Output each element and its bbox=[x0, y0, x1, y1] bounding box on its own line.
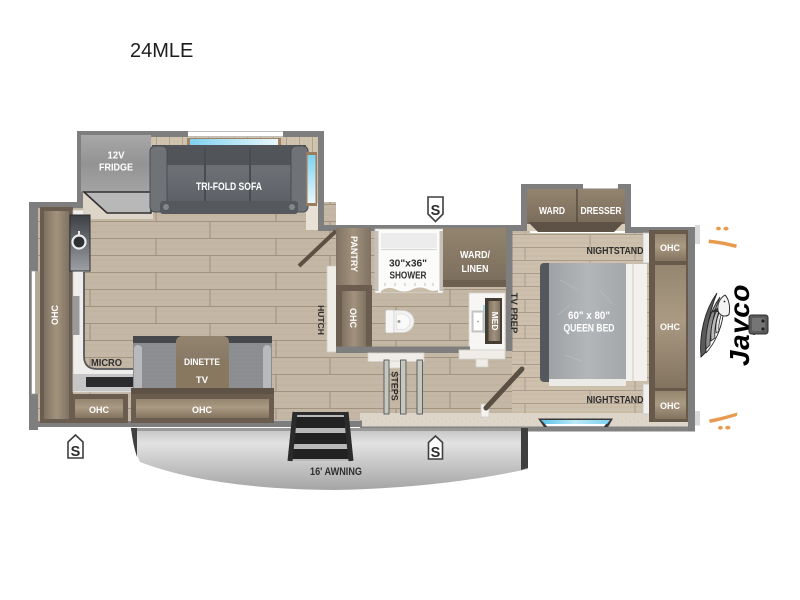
svg-text:PANTRY: PANTRY bbox=[349, 236, 359, 272]
svg-text:WARD/: WARD/ bbox=[460, 250, 490, 261]
svg-text:WARD: WARD bbox=[539, 206, 565, 217]
svg-text:SHOWER: SHOWER bbox=[390, 270, 427, 282]
svg-text:OHC: OHC bbox=[660, 243, 681, 253]
svg-text:OHC: OHC bbox=[89, 405, 110, 415]
svg-text:NIGHTSTAND: NIGHTSTAND bbox=[587, 246, 644, 257]
svg-text:FRIDGE: FRIDGE bbox=[99, 163, 133, 174]
svg-text:OHC: OHC bbox=[660, 401, 681, 411]
svg-text:24MLE: 24MLE bbox=[130, 40, 193, 62]
svg-text:DRESSER: DRESSER bbox=[581, 206, 623, 217]
svg-text:30"x36": 30"x36" bbox=[389, 258, 427, 270]
svg-text:NIGHTSTAND: NIGHTSTAND bbox=[587, 395, 644, 406]
svg-text:DINETTE: DINETTE bbox=[184, 357, 220, 368]
svg-text:HUTCH: HUTCH bbox=[316, 305, 326, 335]
svg-text:S: S bbox=[71, 444, 81, 460]
svg-text:QUEEN BED: QUEEN BED bbox=[564, 323, 615, 335]
svg-text:OHC: OHC bbox=[660, 322, 681, 332]
svg-text:60" x 80": 60" x 80" bbox=[568, 310, 610, 322]
svg-text:16' AWNING: 16' AWNING bbox=[310, 466, 362, 478]
svg-text:OHC: OHC bbox=[192, 405, 213, 415]
svg-text:OHC: OHC bbox=[50, 305, 60, 326]
svg-text:TV PREP: TV PREP bbox=[508, 293, 519, 334]
svg-text:LINEN: LINEN bbox=[462, 264, 489, 275]
svg-text:TV: TV bbox=[196, 375, 209, 386]
svg-text:S: S bbox=[431, 445, 441, 461]
svg-text:S: S bbox=[431, 203, 441, 219]
svg-text:OHC: OHC bbox=[348, 308, 358, 329]
svg-text:12V: 12V bbox=[108, 151, 125, 162]
svg-text:STEPS: STEPS bbox=[390, 371, 400, 401]
svg-text:MED: MED bbox=[490, 312, 500, 331]
svg-text:TRI-FOLD SOFA: TRI-FOLD SOFA bbox=[196, 181, 262, 193]
svg-text:MICRO: MICRO bbox=[91, 358, 122, 369]
